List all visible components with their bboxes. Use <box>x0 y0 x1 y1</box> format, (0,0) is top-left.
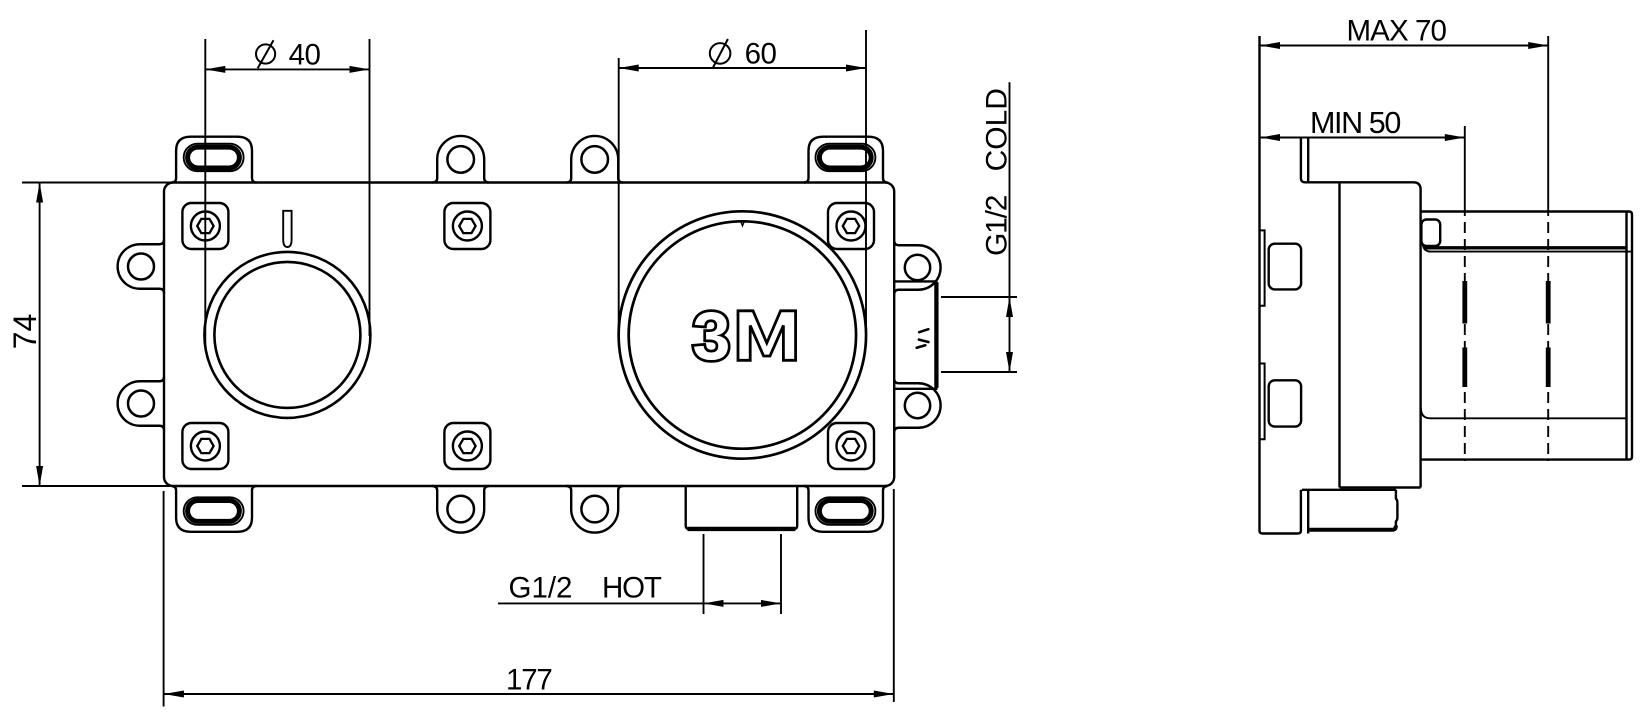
svg-text:HOT: HOT <box>602 572 662 605</box>
svg-text:40: 40 <box>289 38 321 71</box>
svg-text:G1/2: G1/2 <box>981 195 1014 256</box>
svg-text:G1/2: G1/2 <box>509 572 573 605</box>
svg-text:60: 60 <box>745 37 777 70</box>
svg-text:3: 3 <box>693 298 731 374</box>
svg-text:COLD: COLD <box>981 88 1014 171</box>
svg-text:177: 177 <box>506 664 552 697</box>
svg-text:MAX 70: MAX 70 <box>1347 14 1447 47</box>
svg-text:74: 74 <box>7 314 43 350</box>
svg-text:MIN 50: MIN 50 <box>1310 106 1400 140</box>
